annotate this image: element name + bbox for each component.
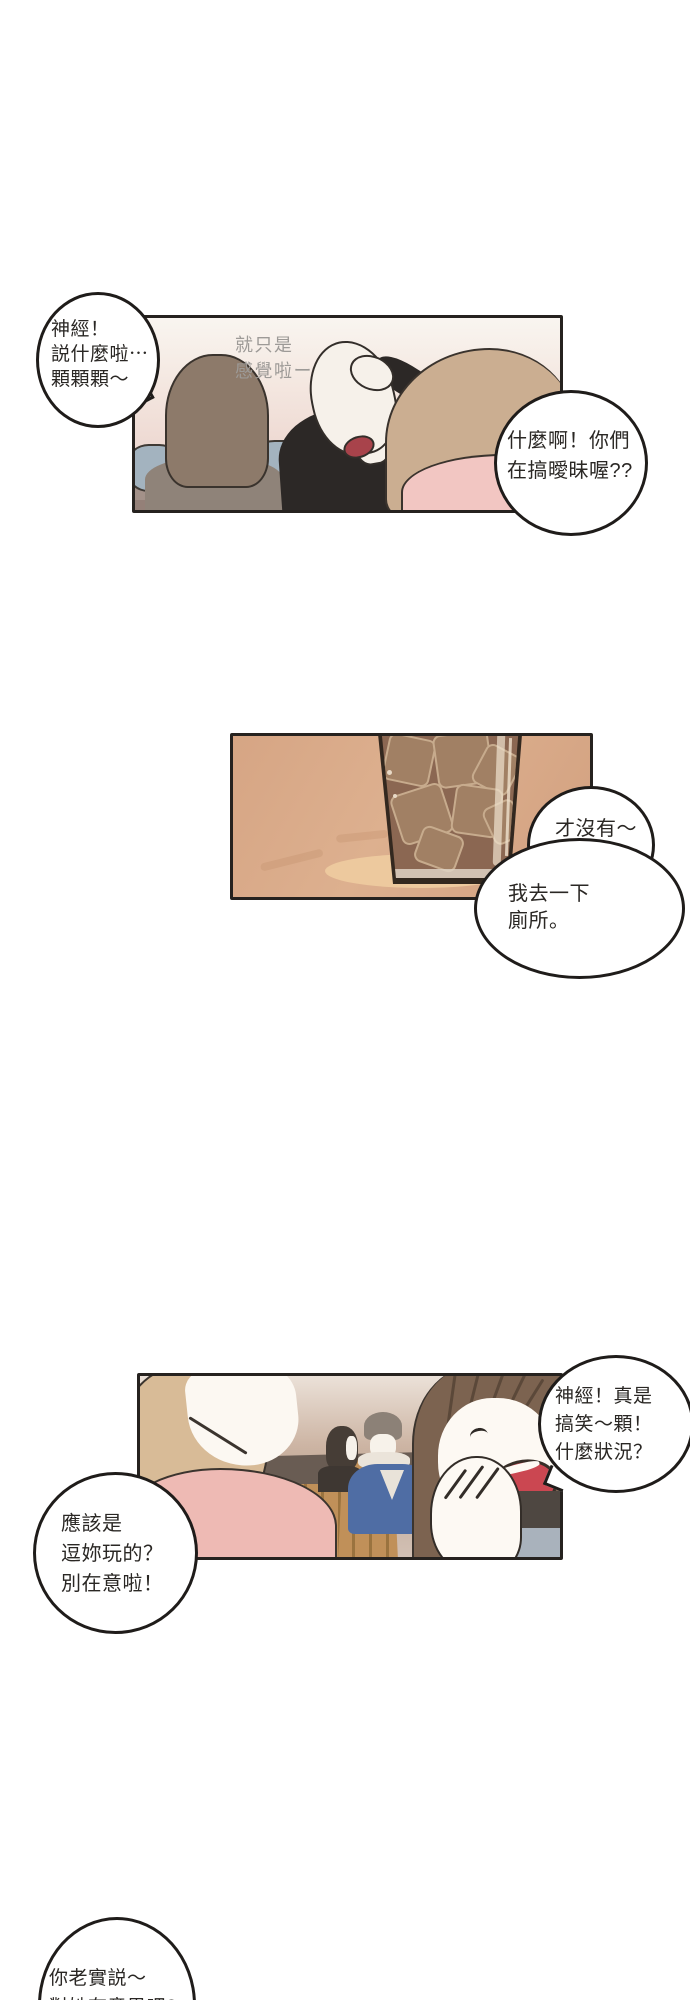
bubble-line: 別在意啦！ — [61, 1569, 164, 1599]
bubble-line: 對她有意思吧? — [49, 1993, 177, 2000]
caption-line: 就只是 — [235, 332, 313, 358]
bubble-text: 你老實説～ 對她有意思吧? — [49, 1964, 177, 2000]
bubble-line: 神經！ — [51, 317, 149, 342]
bubble-line: 神經！真是 — [555, 1383, 653, 1411]
ice-cube — [381, 733, 438, 788]
panel-caption: 就只是 感覺啦ー — [235, 332, 313, 384]
bubble-line: 什麼啊！你們 — [507, 426, 633, 456]
bubble-line: 逗妳玩的？ — [61, 1539, 164, 1569]
speech-bubble-7-clipped: 你老實説～ 對她有意思吧? — [38, 1917, 196, 2000]
speech-bubble-4: 我去一下 廁所。 — [474, 838, 685, 979]
watermark-stroke — [336, 830, 389, 843]
bubble-text: 神經！真是 搞笑～顆！ 什麼狀況？ — [555, 1383, 653, 1467]
iced-drink-glass — [377, 733, 523, 878]
bubble-text: 神經！ 説什麼啦⋯ 顆顆顆～ — [51, 317, 149, 392]
comic-page: 就只是 感覺啦ー — [0, 0, 690, 2000]
bubble-line: 什麼狀況？ — [555, 1439, 653, 1467]
speech-bubble-5: 神經！真是 搞笑～顆！ 什麼狀況？ — [538, 1355, 690, 1493]
bubble-line: 搞笑～顆！ — [555, 1411, 653, 1439]
bubble-text: 我去一下 廁所。 — [508, 881, 590, 935]
background-girl-face — [346, 1436, 357, 1460]
speech-bubble-1: 神經！ 説什麼啦⋯ 顆顆顆～ — [36, 292, 160, 428]
caption-line: 感覺啦ー — [235, 358, 313, 384]
bubble-dot — [393, 794, 397, 798]
bubble-text: 應該是 逗妳玩的？ 別在意啦！ — [61, 1509, 164, 1599]
speech-bubble-2: 什麼啊！你們 在搞曖昧喔?? — [494, 390, 648, 536]
bubble-line: 你老實説～ — [49, 1964, 177, 1993]
bubble-line: 我去一下 — [508, 881, 590, 908]
bubble-line: 廁所。 — [508, 908, 590, 935]
bubble-line: 説什麼啦⋯ — [51, 342, 149, 367]
watermark-stroke — [260, 848, 324, 871]
bubble-dot — [387, 770, 392, 775]
bubble-line: 顆顆顆～ — [51, 367, 149, 392]
bubble-line: 在搞曖昧喔?? — [507, 456, 633, 486]
speech-bubble-6: 應該是 逗妳玩的？ 別在意啦！ — [33, 1472, 198, 1634]
bubble-line: 應該是 — [61, 1509, 164, 1539]
panel-3-cafe-laugh — [137, 1373, 563, 1560]
bubble-text: 什麼啊！你們 在搞曖昧喔?? — [507, 426, 633, 486]
